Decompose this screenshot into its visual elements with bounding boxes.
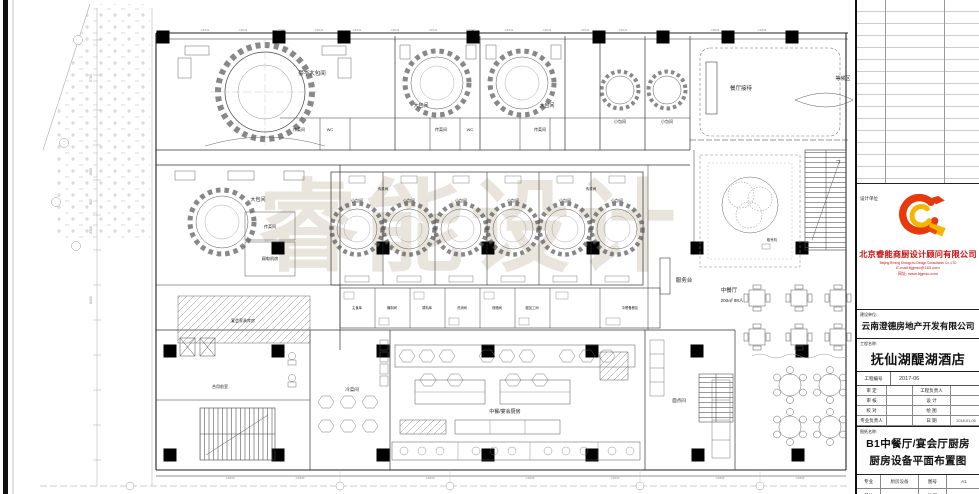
room-label-staple: 主食库 [352, 305, 363, 310]
room-label-roast: 烧腊间 [492, 305, 502, 310]
room-label-small: 小包间 [661, 118, 673, 124]
room-label-reception: 餐厅接待 [730, 84, 753, 92]
title-block: 设计单位 北京睿能商厨设计顾问有限公司 Beijing Rineng Shang… [855, 0, 979, 494]
room-label-small: 小包间 [351, 197, 363, 203]
svg-text:C1041: C1041 [277, 28, 286, 32]
room-label-small: 小包间 [614, 118, 626, 124]
room-label-large: 大包间 [539, 102, 554, 109]
drawing-name-label: 图纸名称: [857, 427, 979, 435]
svg-text:C1833: C1833 [426, 476, 435, 480]
scale-label: 比例 [919, 489, 947, 494]
top-rooms [178, 40, 686, 146]
dim-label: 5700 [89, 74, 93, 82]
approval-value [887, 416, 913, 426]
room-label-number-machine: 取号机 [767, 237, 778, 242]
dim-label: 3300 [89, 226, 93, 234]
revision-table [857, 0, 979, 184]
approval-label: 校 对 [857, 406, 887, 416]
svg-text:C1041: C1041 [505, 28, 514, 32]
room-label-pass: 传菜间 [293, 126, 305, 132]
project-label: 工程名称: [857, 339, 979, 347]
room-label-pass: 传菜间 [534, 126, 546, 132]
room-label-kitchen: 中餐/宴会厨房 [489, 408, 520, 415]
approval-value [887, 406, 913, 416]
stairs-right [805, 150, 846, 250]
client-section: 建设单位: 云南澄德房地产开发有限公司 [857, 310, 979, 339]
svg-text:C1041: C1041 [239, 28, 248, 32]
dim-label: 900 [89, 199, 93, 205]
room-label-pass: 传菜间 [264, 223, 276, 229]
svg-text:C1833: C1833 [611, 476, 620, 480]
sheet-info-grid: 专业 厨房设备 图号 A1 单位 mm 比例 1:100 [857, 475, 979, 494]
approval-label: 设 计 [913, 396, 951, 406]
room-label-small: 小包间 [507, 197, 519, 203]
drawing-name-line2: 厨房设备平面布置图 [857, 454, 979, 469]
approval-label: 日 期 [913, 416, 951, 426]
revision-table-divider [944, 0, 945, 183]
svg-text:C1833: C1833 [796, 476, 805, 480]
project-number-value: 2017-06 [891, 372, 979, 385]
svg-text:C1041: C1041 [201, 28, 210, 32]
planter-feature [700, 155, 800, 267]
approval-value [951, 386, 979, 396]
svg-text:C1833: C1833 [296, 476, 305, 480]
project-number-label: 工程编号 [857, 372, 891, 385]
approval-grid: 审 定 工程负责人 审 核 设 计 校 对 绘 图 专业负责人 日 期 2018… [857, 386, 979, 427]
svg-text:C1833: C1833 [526, 476, 535, 480]
drawing-sheet: 睿能设计 5700 1500 900 3300 8400 [0, 0, 979, 494]
scale-value: 1:100 [947, 489, 979, 494]
room-label-service-desk: 服务台 [676, 276, 693, 284]
room-label-waiting: 等候区 [835, 75, 850, 82]
room-label-dining-capacity: 200㎡ 88人 [721, 297, 744, 303]
design-unit-section: 设计单位 北京睿能商厨设计顾问有限公司 Beijing Rineng Shang… [857, 194, 979, 310]
watermark: 睿能设计 [258, 172, 682, 284]
room-label-pass: 传菜间 [586, 186, 597, 191]
client-name: 云南澄德房地产开发有限公司 [857, 319, 979, 332]
svg-text:C1041: C1041 [581, 28, 590, 32]
approval-label: 审 核 [857, 396, 887, 406]
room-label-weak-power: 弱电机房 [262, 255, 279, 262]
svg-text:C1833: C1833 [226, 476, 235, 480]
project-name: 抚仙湖醍湖酒店 [857, 349, 979, 368]
room-label-prep-area: 中餐备餐区 [622, 305, 639, 310]
svg-text:C1834: C1834 [758, 28, 767, 32]
room-label-large: 大包间 [413, 102, 428, 109]
approval-value [887, 396, 913, 406]
revision-table-divider [885, 0, 886, 183]
approval-value [951, 406, 979, 416]
svg-text:C1041: C1041 [353, 28, 362, 32]
client-label: 建设单位: [857, 310, 979, 318]
room-label-lobby: 合用前室 [212, 383, 228, 389]
floor-plan: 睿能设计 5700 1500 900 3300 8400 [0, 0, 855, 494]
room-label-wc: WC [327, 127, 334, 132]
unit-value: mm [881, 489, 919, 494]
specialty-value: 厨房设备 [881, 475, 919, 489]
drawing-name-section: 图纸名称: B1中餐厅/宴会厅厨房 厨房设备平面布置图 [857, 427, 979, 475]
room-label-small: 小包间 [611, 197, 623, 203]
approval-value [887, 386, 913, 396]
dining-area [699, 285, 851, 446]
svg-text:C1833: C1833 [716, 476, 725, 480]
room-label-pass: 传菜间 [378, 186, 389, 191]
room-label-wash: 洗消间 [457, 305, 467, 310]
room-label-banquet-store: 宴会家具库房 [231, 317, 255, 323]
project-number-row: 工程编号 2017-06 [857, 372, 979, 386]
room-label-spice: 调料库 [422, 305, 433, 310]
room-label-cold-dish: 冷菜间 [345, 386, 359, 393]
drawing-name-line1: B1中餐厅/宴会厅厨房 [857, 437, 979, 452]
room-label-luxury: 豪华大包间 [298, 69, 326, 77]
sheet-frame [3, 0, 13, 494]
specialty-label: 专业 [857, 475, 881, 489]
svg-text:C1041: C1041 [391, 28, 400, 32]
approval-label: 工程负责人 [913, 386, 951, 396]
room-label-small: 小包间 [403, 197, 415, 203]
design-unit-label: 设计单位 [860, 196, 878, 202]
svg-text:C1834: C1834 [711, 28, 720, 32]
dim-label: 8400 [89, 296, 93, 304]
svg-text:C1041: C1041 [543, 28, 552, 32]
svg-text:C1041: C1041 [619, 28, 628, 32]
approval-value [951, 396, 979, 406]
approval-label: 专业负责人 [857, 416, 887, 426]
svg-text:C1041: C1041 [467, 28, 476, 32]
room-label-rough-prep: 粗加工间 [525, 305, 538, 310]
project-section: 工程名称: 抚仙湖醍湖酒店 [857, 339, 979, 372]
company-website: 网址: www.bjgnsc.com [857, 271, 979, 277]
room-label-pickle: 腌制间 [387, 305, 397, 310]
sheet-no-label: 图号 [919, 475, 947, 489]
approval-label: 绘 图 [913, 406, 951, 416]
approval-label: 审 定 [857, 386, 887, 396]
kitchen-area [318, 340, 730, 460]
room-label-large: 大包间 [250, 196, 265, 203]
sheet-no-value: A1 [947, 475, 979, 489]
room-label-small: 小包间 [559, 197, 571, 203]
company-name-cn: 北京睿能商厨设计顾问有限公司 [857, 248, 979, 260]
unit-label: 单位 [857, 489, 881, 494]
svg-text:C1041: C1041 [315, 28, 324, 32]
room-label-pass: 传菜间 [435, 126, 447, 132]
date-value: 2018-01-05 [951, 416, 979, 426]
svg-text:C1041: C1041 [429, 28, 438, 32]
room-label-small: 小包间 [455, 197, 467, 203]
room-label-pastry: 面点间 [672, 397, 686, 404]
room-label-dining: 中餐厅 [721, 286, 738, 294]
site-boundary [40, 470, 848, 492]
room-label-wc: WC [467, 127, 474, 132]
reception-area [700, 48, 853, 136]
dim-label: 1500 [89, 168, 93, 176]
